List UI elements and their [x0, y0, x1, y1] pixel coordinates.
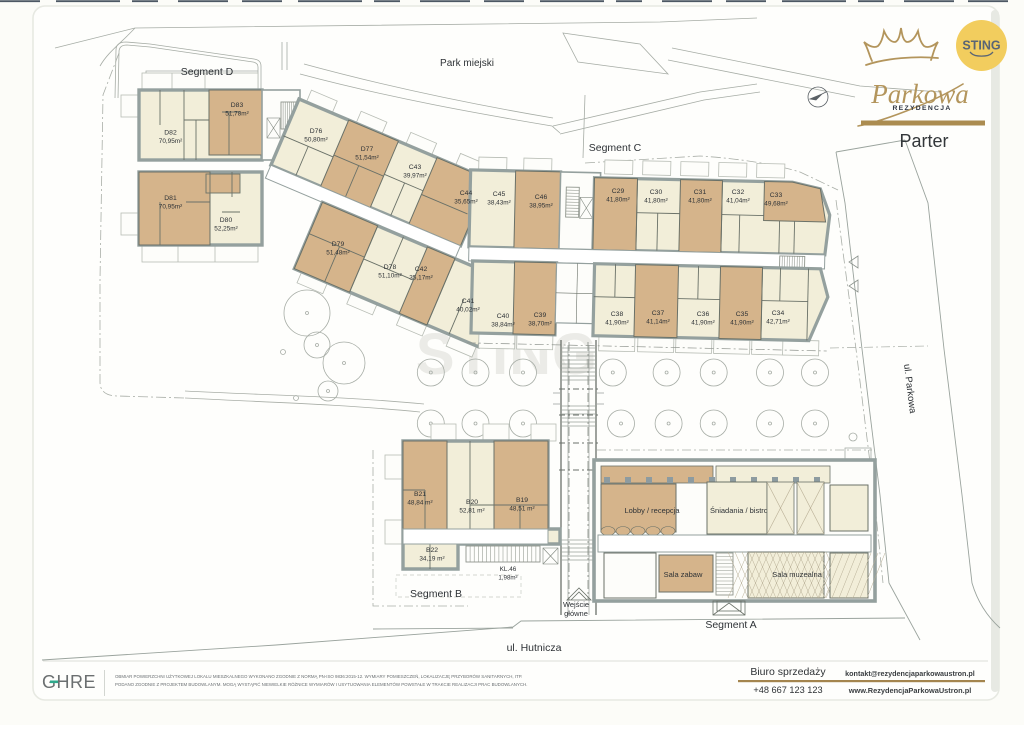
svg-text:39,97m²: 39,97m² [403, 172, 426, 179]
svg-text:C44: C44 [460, 190, 473, 197]
svg-text:D80: D80 [220, 217, 233, 224]
svg-text:50,80m²: 50,80m² [304, 136, 327, 143]
svg-text:70,95m²: 70,95m² [159, 203, 182, 210]
svg-text:główne: główne [564, 609, 588, 618]
svg-text:38,43m²: 38,43m² [487, 199, 510, 206]
svg-text:D79: D79 [332, 241, 345, 248]
svg-text:51,54m²: 51,54m² [355, 154, 378, 161]
svg-text:52,81 m²: 52,81 m² [459, 507, 484, 514]
svg-text:1,98m²: 1,98m² [498, 574, 517, 581]
svg-text:REZYDENCJA: REZYDENCJA [892, 105, 951, 112]
svg-text:PODANO ZGODNIE Z PROJEKTEM BUD: PODANO ZGODNIE Z PROJEKTEM BUDOWLANYM. M… [115, 682, 527, 687]
svg-text:C45: C45 [493, 191, 506, 198]
svg-text:48,51 m²: 48,51 m² [509, 505, 534, 512]
svg-text:35,17m²: 35,17m² [409, 274, 432, 281]
svg-text:38,95m²: 38,95m² [529, 202, 552, 209]
svg-text:kontakt@rezydencjaparkowaustro: kontakt@rezydencjaparkowaustron.pl [845, 669, 975, 678]
svg-text:C35: C35 [736, 311, 749, 318]
svg-text:C42: C42 [415, 266, 428, 273]
svg-text:C37: C37 [652, 310, 665, 317]
svg-text:B20: B20 [466, 499, 478, 506]
svg-text:ul. Hutnicza: ul. Hutnicza [507, 642, 562, 654]
svg-text:Biuro sprzedaży: Biuro sprzedaży [750, 666, 826, 678]
svg-text:+48 667 123 123: +48 667 123 123 [753, 685, 822, 695]
svg-text:C34: C34 [772, 310, 785, 317]
svg-text:D81: D81 [164, 195, 177, 202]
svg-text:D76: D76 [310, 128, 323, 135]
svg-text:41,80m²: 41,80m² [644, 197, 667, 204]
svg-text:Sala muzealna: Sala muzealna [772, 570, 822, 579]
svg-text:41,90m²: 41,90m² [605, 319, 628, 326]
svg-text:C30: C30 [650, 189, 663, 196]
svg-text:Segment C: Segment C [589, 142, 642, 154]
svg-text:C43: C43 [409, 164, 422, 171]
svg-text:34,19 m²: 34,19 m² [419, 555, 444, 562]
svg-text:49,68m²: 49,68m² [764, 200, 787, 207]
svg-text:41,90m²: 41,90m² [730, 319, 753, 326]
svg-text:40,02m²: 40,02m² [456, 306, 479, 313]
svg-text:Park miejski: Park miejski [440, 58, 494, 69]
svg-text:www.RezydencjaParkowaUstron.pl: www.RezydencjaParkowaUstron.pl [848, 686, 972, 695]
svg-text:Wejście: Wejście [563, 600, 589, 609]
svg-text:C41: C41 [462, 298, 475, 305]
svg-text:C31: C31 [694, 189, 707, 196]
svg-text:41,04m²: 41,04m² [726, 197, 749, 204]
svg-text:51,10m²: 51,10m² [378, 272, 401, 279]
svg-text:70,95m²: 70,95m² [159, 138, 182, 145]
svg-text:B22: B22 [426, 547, 438, 554]
svg-text:52,25m²: 52,25m² [214, 225, 237, 232]
svg-text:C33: C33 [770, 192, 783, 199]
svg-text:42,71m²: 42,71m² [766, 318, 789, 325]
svg-text:C32: C32 [732, 189, 745, 196]
svg-text:Segment B: Segment B [410, 588, 462, 600]
svg-text:STING: STING [962, 39, 1000, 53]
svg-text:C38: C38 [611, 311, 624, 318]
svg-text:51,48m²: 51,48m² [326, 249, 349, 256]
svg-text:C46: C46 [535, 194, 548, 201]
svg-text:41,80m²: 41,80m² [606, 196, 629, 203]
svg-text:51,78m²: 51,78m² [225, 110, 248, 117]
svg-text:D78: D78 [384, 264, 397, 271]
svg-text:Parter: Parter [899, 131, 948, 151]
svg-text:C40: C40 [497, 313, 510, 320]
svg-text:38,84m²: 38,84m² [491, 321, 514, 328]
svg-text:41,90m²: 41,90m² [691, 319, 714, 326]
svg-text:OBMIAR POWIERZCHNI UŻYTKOWEJ L: OBMIAR POWIERZCHNI UŻYTKOWEJ LOKALU MIES… [115, 674, 522, 679]
svg-text:41,14m²: 41,14m² [646, 318, 669, 325]
svg-text:Segment A: Segment A [705, 619, 756, 631]
svg-text:D83: D83 [231, 102, 244, 109]
svg-text:41,80m²: 41,80m² [688, 197, 711, 204]
svg-text:48,84 m²: 48,84 m² [407, 499, 432, 506]
svg-text:D77: D77 [361, 146, 374, 153]
svg-text:B19: B19 [516, 497, 528, 504]
svg-text:C29: C29 [612, 188, 625, 195]
svg-text:Lobby / recepcja: Lobby / recepcja [624, 506, 680, 515]
svg-text:35,65m²: 35,65m² [454, 198, 477, 205]
svg-text:Śniadania / bistro: Śniadania / bistro [710, 506, 768, 515]
svg-text:Segment D: Segment D [181, 66, 234, 78]
svg-text:38,70m²: 38,70m² [528, 320, 551, 327]
svg-text:D82: D82 [164, 130, 177, 137]
svg-text:B21: B21 [414, 491, 426, 498]
svg-text:Sala zabaw: Sala zabaw [664, 570, 703, 579]
svg-text:C39: C39 [534, 312, 547, 319]
svg-text:KL.46: KL.46 [500, 566, 517, 573]
svg-text:C36: C36 [697, 311, 710, 318]
